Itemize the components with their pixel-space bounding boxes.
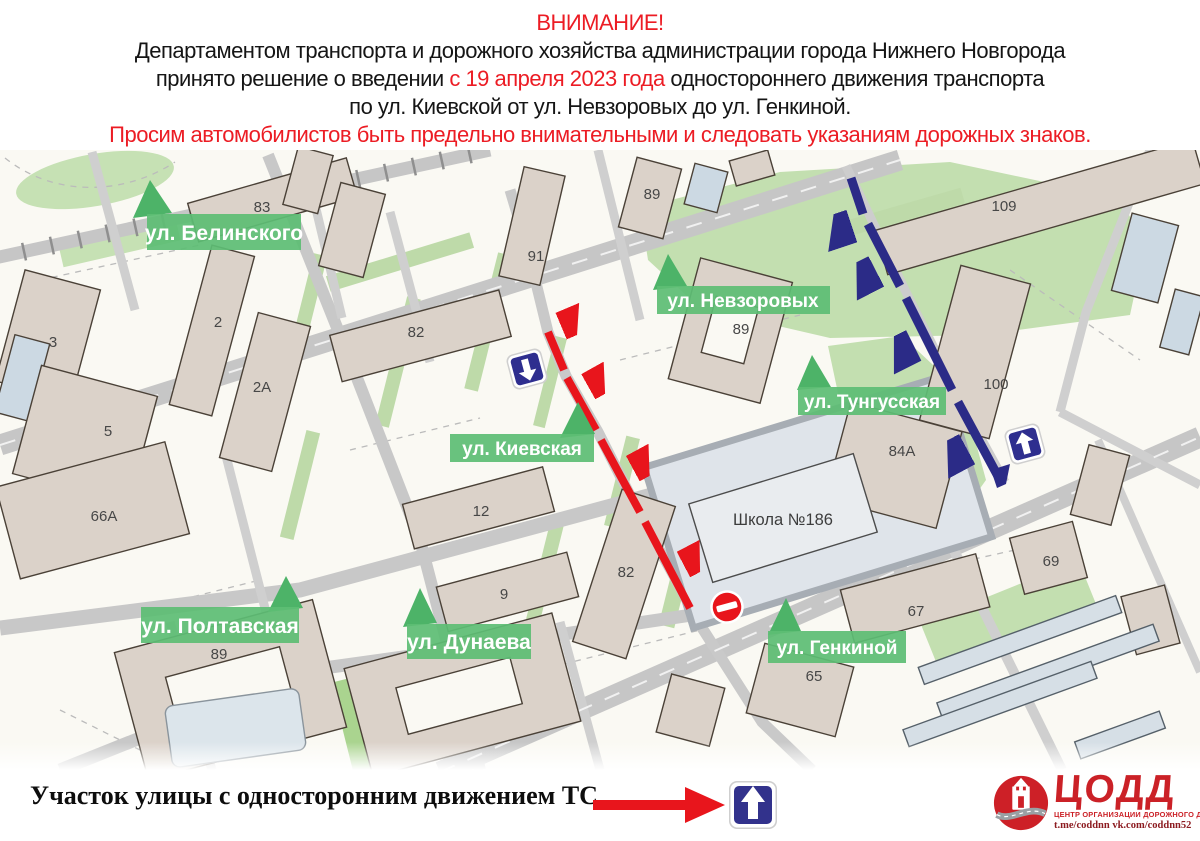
header-date: с 19 апреля 2023 года: [449, 66, 664, 91]
building-number: 5: [104, 423, 112, 440]
building-number: 82: [408, 324, 425, 341]
building-number: 2: [214, 314, 222, 331]
svg-text:ул. Киевская: ул. Киевская: [462, 439, 582, 460]
building-number: 89: [733, 321, 750, 338]
building-number: 89: [644, 186, 661, 203]
building-number: 67: [908, 603, 925, 620]
page-title: ВНИМАНИЕ!: [0, 9, 1200, 37]
header-line-1: Департаментом транспорта и дорожного хоз…: [0, 37, 1200, 65]
building-number: 82: [618, 564, 635, 581]
city-map: 83 2 2А 3 5 66А 89 12 9 82 82 91 89 89 1…: [0, 150, 1200, 770]
map-fade: [0, 742, 1200, 770]
building-number: 89: [211, 646, 228, 663]
legend: Участок улицы с односторонним движением …: [0, 770, 1200, 841]
codd-logo: ЦОДД ЦЕНТР ОРГАНИЗАЦИИ ДОРОЖНОГО ДВИЖЕНИ…: [992, 773, 1192, 833]
header-line-3: по ул. Киевской от ул. Невзоровых до ул.…: [0, 93, 1200, 121]
school-label: Школа №186: [733, 511, 833, 529]
codd-logo-name: ЦОДД: [1053, 773, 1193, 807]
legend-graphics: [585, 770, 795, 840]
building-number: 65: [806, 668, 823, 685]
header-line-2-post: одностороннего движения транспорта: [665, 66, 1044, 91]
codd-logo-tagline: ЦЕНТР ОРГАНИЗАЦИИ ДОРОЖНОГО ДВИЖЕНИЯ: [1054, 810, 1192, 819]
header-line-2: принято решение о введении с 19 апреля 2…: [0, 65, 1200, 93]
building-number: 9: [500, 586, 508, 603]
building-number: 84А: [889, 443, 916, 460]
building-number: 100: [983, 376, 1008, 393]
header-line-2-pre: принято решение о введении: [156, 66, 449, 91]
header-warning: Просим автомобилистов быть предельно вни…: [0, 121, 1200, 149]
codd-logo-links: t.me/coddnn vk.com/coddnn52: [1054, 820, 1192, 831]
svg-text:ул. Тунгусская: ул. Тунгусская: [804, 392, 940, 413]
codd-logo-texts: ЦОДД ЦЕНТР ОРГАНИЗАЦИИ ДОРОЖНОГО ДВИЖЕНИ…: [1054, 773, 1192, 831]
svg-text:ул. Дунаева: ул. Дунаева: [407, 631, 531, 654]
announcement-poster: ВНИМАНИЕ! Департаментом транспорта и дор…: [0, 0, 1200, 841]
building-number: 3: [49, 334, 57, 351]
codd-logo-icon: [992, 773, 1050, 833]
one-way-sign-icon: [729, 781, 777, 829]
building-number: 91: [528, 248, 545, 265]
building-number: 12: [473, 503, 490, 520]
building-number: 69: [1043, 553, 1060, 570]
building-number: 66А: [91, 508, 118, 525]
header: ВНИМАНИЕ! Департаментом транспорта и дор…: [0, 0, 1200, 149]
building-number: 2А: [253, 379, 271, 396]
svg-text:ул. Полтавская: ул. Полтавская: [141, 615, 299, 638]
svg-text:ул. Генкиной: ул. Генкиной: [777, 638, 898, 659]
svg-text:ул. Невзоровых: ул. Невзоровых: [667, 291, 819, 312]
building-number: 83: [254, 199, 271, 216]
building-number: 109: [991, 198, 1016, 215]
red-arrow-icon: [593, 787, 725, 823]
legend-label: Участок улицы с односторонним движением …: [30, 781, 598, 811]
svg-text:ул. Белинского: ул. Белинского: [145, 222, 303, 245]
